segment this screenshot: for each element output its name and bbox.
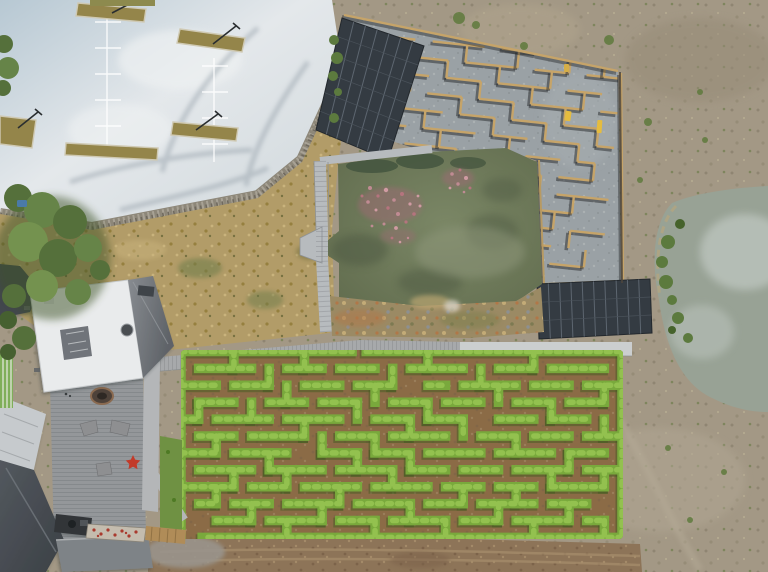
pond-flower — [469, 187, 472, 190]
grass-tuft — [172, 498, 176, 502]
central-pond — [327, 148, 542, 321]
pond-flower — [419, 205, 422, 208]
awning-object — [80, 520, 88, 526]
pond-flower — [384, 188, 388, 192]
pond-flower — [449, 187, 452, 190]
roof-vent — [121, 324, 133, 336]
awning-object — [68, 520, 76, 528]
pond-flower — [371, 225, 374, 228]
weed-patch — [247, 291, 283, 309]
pond-flower — [376, 194, 379, 197]
verge-strip — [90, 0, 155, 6]
maze-bench — [597, 120, 603, 133]
pond-flower — [456, 182, 459, 185]
dry-patch — [114, 240, 166, 260]
pond-flowers-underlay — [380, 228, 416, 244]
pond-flower — [463, 191, 466, 194]
pond-flower — [412, 212, 416, 216]
pond-flower — [408, 202, 411, 205]
pond-flower — [375, 209, 378, 212]
pond-flower — [399, 241, 402, 244]
floor-light — [542, 72, 618, 168]
pond-flower — [404, 220, 407, 223]
pond-flower — [394, 226, 398, 230]
pond-flower — [464, 176, 468, 180]
pond-flower — [459, 169, 462, 172]
pond-flower — [391, 237, 394, 240]
lawn-strip — [0, 354, 13, 408]
pond-flower — [368, 186, 372, 190]
field-tonal-patch — [625, 18, 768, 102]
hedge-maze — [180, 350, 624, 539]
blue-object — [17, 200, 27, 207]
maze-bench — [564, 64, 569, 72]
small-object — [69, 395, 71, 397]
fire-pit-center — [97, 393, 107, 400]
side-path — [142, 360, 160, 512]
rock-bench — [96, 462, 112, 476]
pond-flower — [450, 172, 454, 176]
grass-verge — [160, 436, 182, 536]
rooftop-unit — [138, 285, 155, 297]
aerial-photo-canvas — [0, 0, 768, 572]
pond-flowers-underlay — [358, 187, 422, 223]
pond-flower — [400, 192, 404, 196]
solar-array-south — [537, 279, 652, 339]
pond-flower — [417, 195, 420, 198]
pond-flower — [383, 223, 386, 226]
pond-flower — [396, 212, 400, 216]
pond-flower — [386, 206, 389, 209]
weed-patch — [178, 258, 222, 278]
pond-flower — [407, 237, 409, 239]
planter-island — [0, 116, 36, 148]
small-object — [65, 393, 68, 396]
pond-flower — [361, 195, 364, 198]
pond-flower — [392, 198, 396, 202]
grass-tuft — [166, 450, 170, 454]
dirt-dark-patch — [390, 552, 450, 568]
aerial-photo — [0, 0, 768, 572]
boardwalk-planks — [320, 161, 326, 332]
pond-flower — [366, 200, 370, 204]
